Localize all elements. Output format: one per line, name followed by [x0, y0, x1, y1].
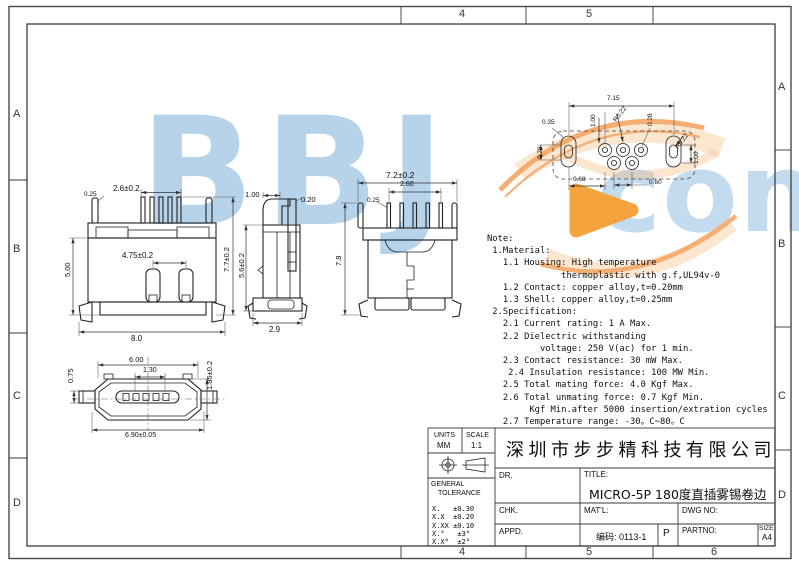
border-left-c: C: [13, 390, 21, 402]
dim-side-pin-thickness: 0.20: [301, 195, 316, 204]
note-line: 2.2 Dielectric withstanding: [487, 331, 768, 343]
drawing-sheet: BBJ conn: [0, 0, 799, 568]
partno-label: PARTNO:: [682, 526, 717, 535]
size-value: A4: [762, 533, 772, 542]
note-line: 2.1 Current rating: 1 A Max.: [487, 318, 768, 330]
general-tolerance-line2: TOLERANCE: [438, 490, 481, 497]
note-line: 2.5 Total mating force: 4.0 Kgf Max.: [487, 379, 768, 391]
tolerance-line: X.X ±0.20: [432, 513, 474, 521]
note-line: thermoplastic with g.f,UL94v-0: [487, 270, 768, 282]
chk-label: CHK.: [499, 506, 518, 515]
tolerance-line: X.XX ±0.10: [432, 522, 474, 530]
border-top-4: 4: [459, 8, 465, 20]
note-line: 1.2 Contact: copper alloy,t=0.20mm: [487, 282, 768, 294]
note-line: Kgf Min.after 5000 insertion/extration c…: [487, 404, 768, 416]
dim-rear-overall-height: 7.8: [334, 256, 343, 266]
dim-front-overall-height: 7.7±0.2: [222, 247, 231, 272]
dim-bottom-shell-height: 1.85±0.2: [205, 361, 214, 390]
dim-rear-pin-width: 0.25: [367, 197, 380, 204]
border-right-d: D: [778, 489, 786, 501]
dim-footprint-row-offset: 0.68: [573, 176, 586, 183]
border-right-b: B: [778, 238, 785, 250]
dim-rear-pin-span: 2.60: [400, 181, 414, 188]
p-value: P: [663, 528, 670, 539]
dim-footprint-pad-pitch-right: 1.00: [693, 151, 700, 164]
dim-footprint-hole-width: 0.28: [647, 113, 654, 126]
border-top-5: 5: [586, 8, 592, 20]
code-value: 编码: 0113-1: [596, 530, 646, 543]
matl-label: MAT'L:: [584, 506, 609, 515]
border-left-d: D: [13, 497, 21, 509]
dim-footprint-pad-pitch: 0.60: [649, 179, 662, 186]
scale-label: SCALE: [466, 432, 489, 439]
general-tolerance-line1: GENERAL: [431, 481, 464, 488]
dim-bottom-shell-width: 6.00: [129, 355, 144, 364]
side-view: [243, 192, 307, 326]
dim-bottom-tongue-inset: 1.30: [143, 367, 157, 374]
dim-front-body-height: 5.00: [63, 262, 72, 277]
units-value: MM: [437, 441, 450, 450]
title-label: TITLE:: [584, 470, 608, 479]
note-line: voltage: 250 V(ac) for 1 min.: [487, 343, 768, 355]
size-label: SIZE: [759, 525, 773, 532]
note-line: Note:: [487, 233, 768, 245]
appd-label: APPD.: [499, 527, 523, 536]
dim-footprint-pad-length: 0.78: [537, 146, 544, 159]
drawing-title: MICRO-5P 180度直插雾锡卷边: [589, 484, 766, 503]
tolerance-line: X.X° ±2°: [432, 538, 474, 546]
note-line: 2.7 Temperature range: -30。C~80。C: [487, 416, 768, 428]
dr-label: DR.: [499, 471, 513, 480]
note-line: 2.6 Total unmating force: 0.7 Kgf Min.: [487, 392, 768, 404]
border-left-a: A: [13, 108, 20, 120]
projection-symbol-icon: [439, 456, 489, 474]
border-right-c: C: [778, 390, 786, 402]
units-label: UNITS: [434, 432, 455, 439]
dim-bottom-latch-height: 0.75: [66, 368, 75, 383]
dim-front-overall-width: 8.0: [131, 334, 142, 343]
dim-side-body-height: 5.6±0.2: [237, 253, 246, 278]
dwg-no-label: DWG NO:: [682, 506, 718, 515]
scale-value: 1:1: [471, 441, 482, 450]
company-name: 深圳市步步精科技有限公司: [506, 436, 776, 462]
note-line: 2.Specification:: [487, 306, 768, 318]
border-left-b: B: [13, 243, 20, 255]
tolerance-list: X. ±0.30X.X ±0.20X.XX ±0.10X.° ±3°X.X° ±…: [432, 505, 474, 546]
rear-view: [341, 179, 461, 317]
tolerance-line: X. ±0.30: [432, 505, 474, 513]
tolerance-line: X.° ±3°: [432, 530, 474, 538]
dim-footprint-pad-span: 7.15: [607, 95, 620, 102]
dim-front-post-span: 4.75±0.2: [122, 251, 153, 260]
dim-bottom-overall-width: 6.90±0.05: [125, 432, 156, 439]
dim-front-pin-width: 0.25: [84, 191, 97, 198]
note-line: 1.3 Shell: copper alloy,t=0.25mm: [487, 294, 768, 306]
dim-side-top-width: 1.00: [245, 190, 260, 199]
note-line: 1.1 Housing: High temperature: [487, 257, 768, 269]
dim-footprint-edge-offset: 0.35: [542, 119, 555, 126]
notes-block: Note: 1.Material: 1.1 Housing: High temp…: [487, 233, 768, 428]
front-view: [69, 189, 236, 336]
dim-side-depth: 2.9: [269, 325, 280, 334]
dim-front-pin-span: 2.6±0.2: [113, 184, 140, 193]
dim-footprint-pad-pitch-left: 1.00: [590, 114, 597, 127]
border-bottom-5: 5: [586, 546, 592, 558]
border-bottom-4: 4: [459, 546, 465, 558]
border-bottom-6: 6: [711, 546, 717, 558]
border-right-a: A: [778, 81, 785, 93]
note-line: 1.Material:: [487, 245, 768, 257]
dim-rear-overall-width: 7.2±0.2: [386, 170, 414, 180]
note-line: 2.3 Contact resistance: 30 mW Max.: [487, 355, 768, 367]
note-line: 2.4 Insulation resistance: 100 MW Min.: [487, 367, 768, 379]
